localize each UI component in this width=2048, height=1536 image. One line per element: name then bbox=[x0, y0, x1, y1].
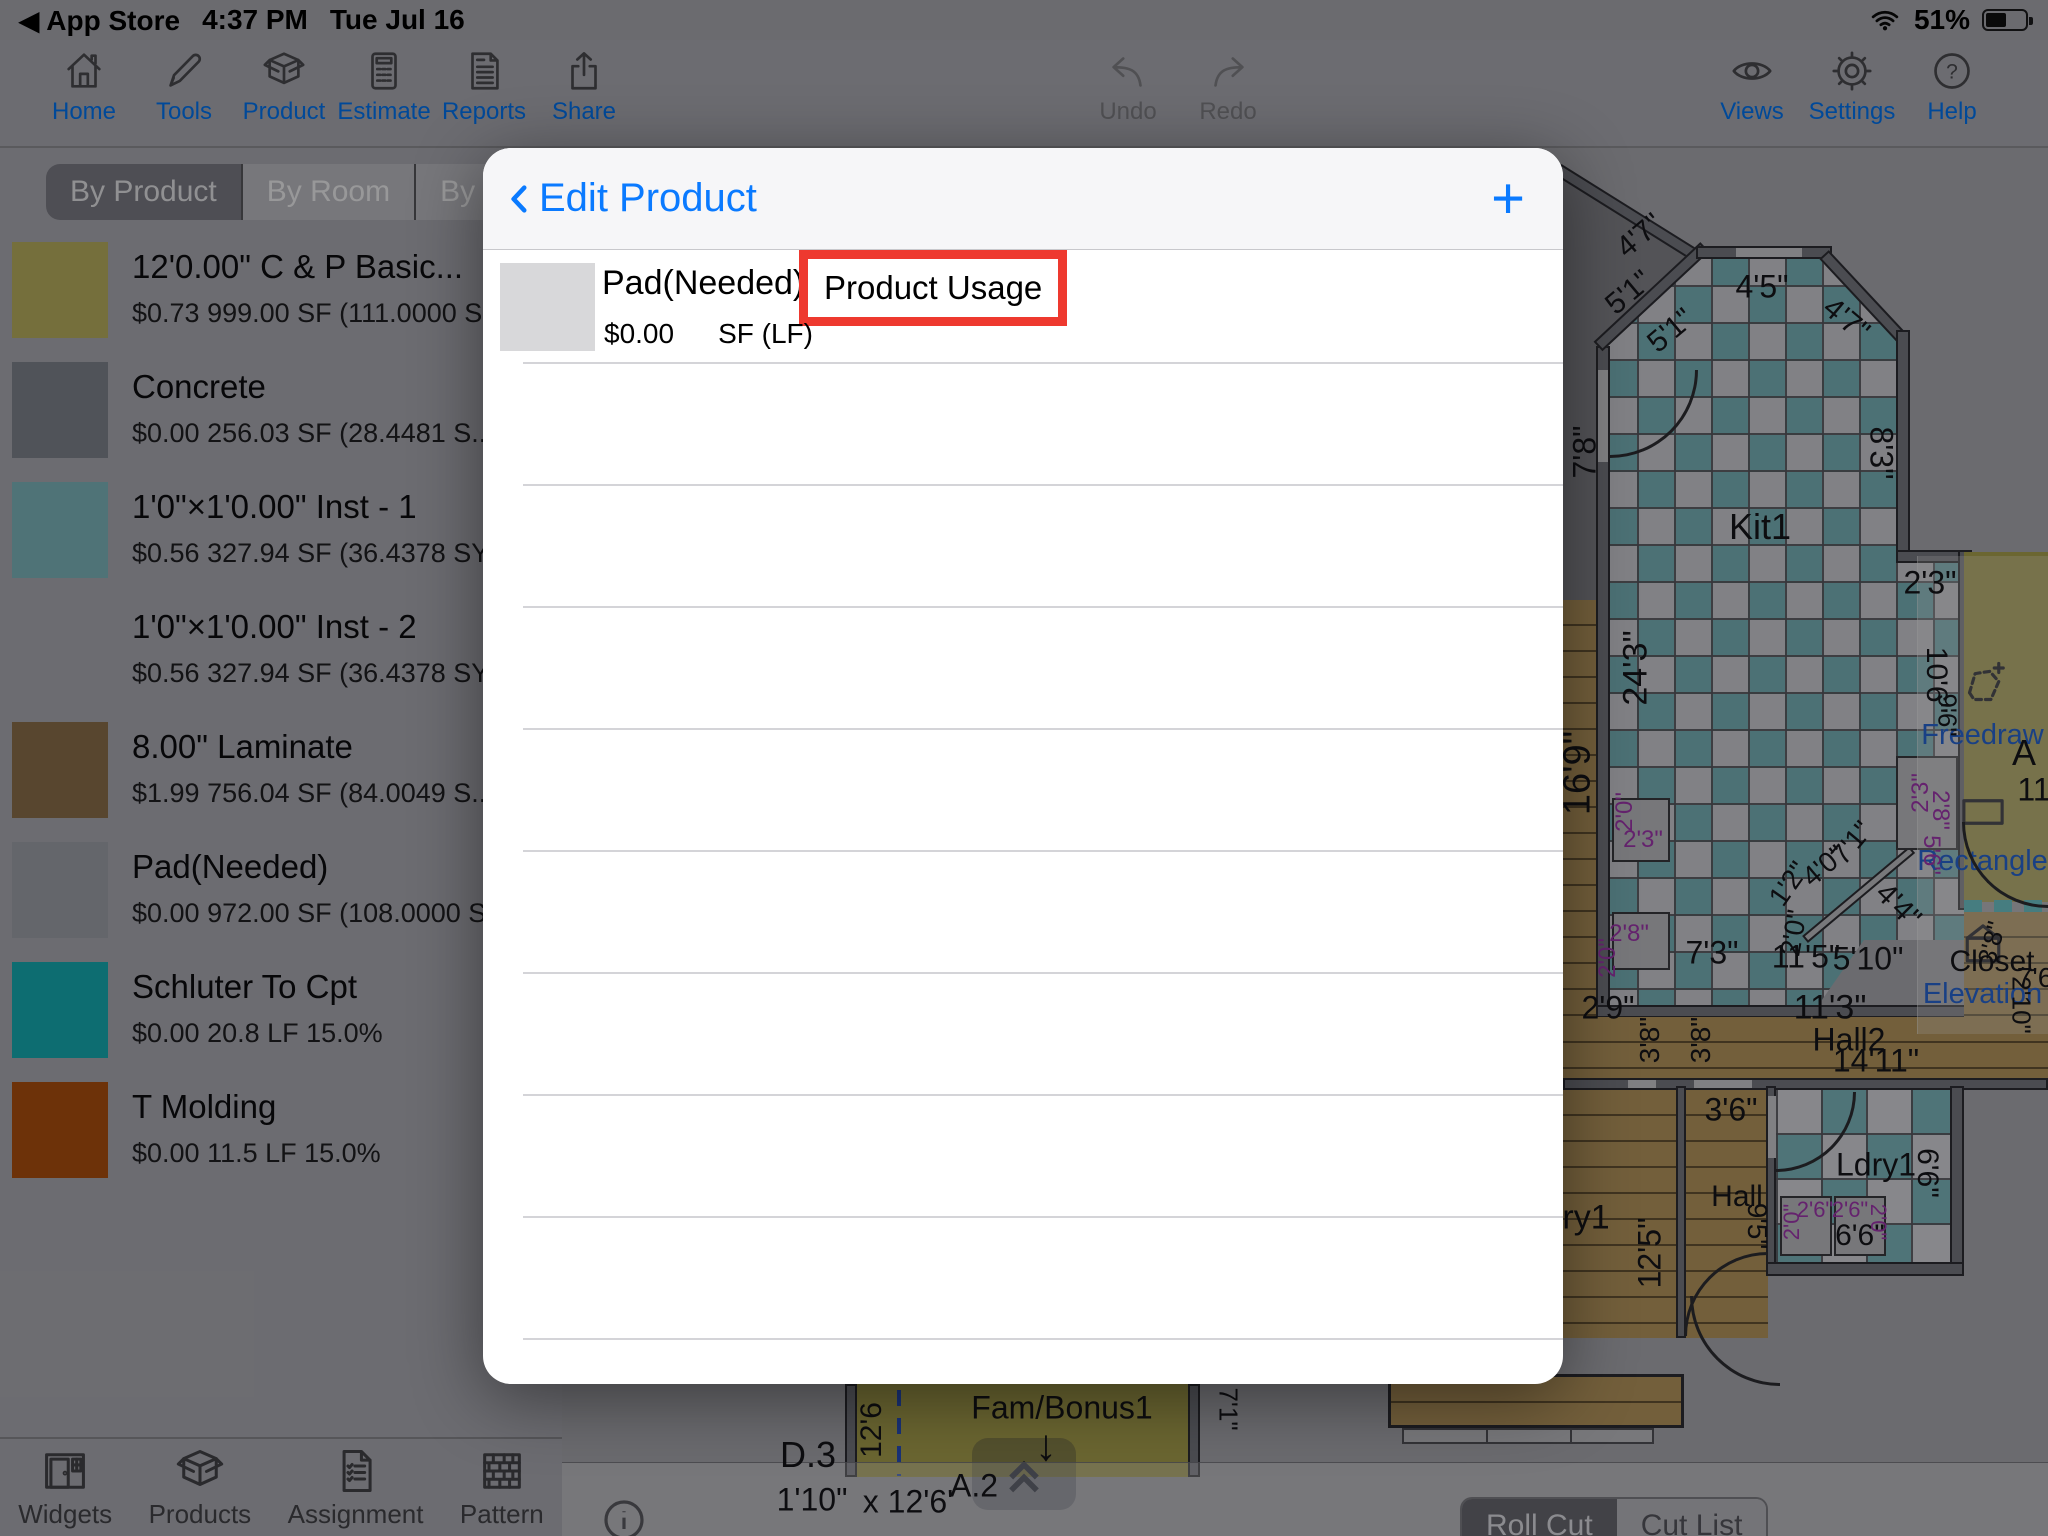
modal-header: Edit Product + bbox=[483, 148, 1563, 250]
modal-title: Edit Product bbox=[539, 176, 757, 221]
product-usage-button[interactable]: Product Usage bbox=[799, 250, 1067, 326]
empty-product-rows bbox=[523, 364, 1563, 1384]
product-swatch bbox=[500, 263, 595, 351]
product-price-row: $0.00SF (LF) bbox=[604, 318, 813, 350]
back-chevron-icon bbox=[503, 177, 537, 221]
product-name: Pad(Needed) bbox=[602, 264, 804, 303]
product-unit: SF (LF) bbox=[718, 318, 813, 349]
product-price: $0.00 bbox=[604, 318, 674, 349]
app-screen: FreedrawRectangleElevation Roll CutCut L… bbox=[0, 0, 2048, 1536]
product-usage-annotation: Product Usage bbox=[799, 250, 1067, 326]
back-button[interactable]: Edit Product bbox=[503, 176, 757, 221]
add-product-button[interactable]: + bbox=[1491, 170, 1525, 228]
edit-product-modal: Edit Product + Pad(Needed) Product Usage… bbox=[483, 148, 1563, 1384]
product-row[interactable]: Pad(Needed) Product Usage $0.00SF (LF) bbox=[483, 250, 1563, 364]
